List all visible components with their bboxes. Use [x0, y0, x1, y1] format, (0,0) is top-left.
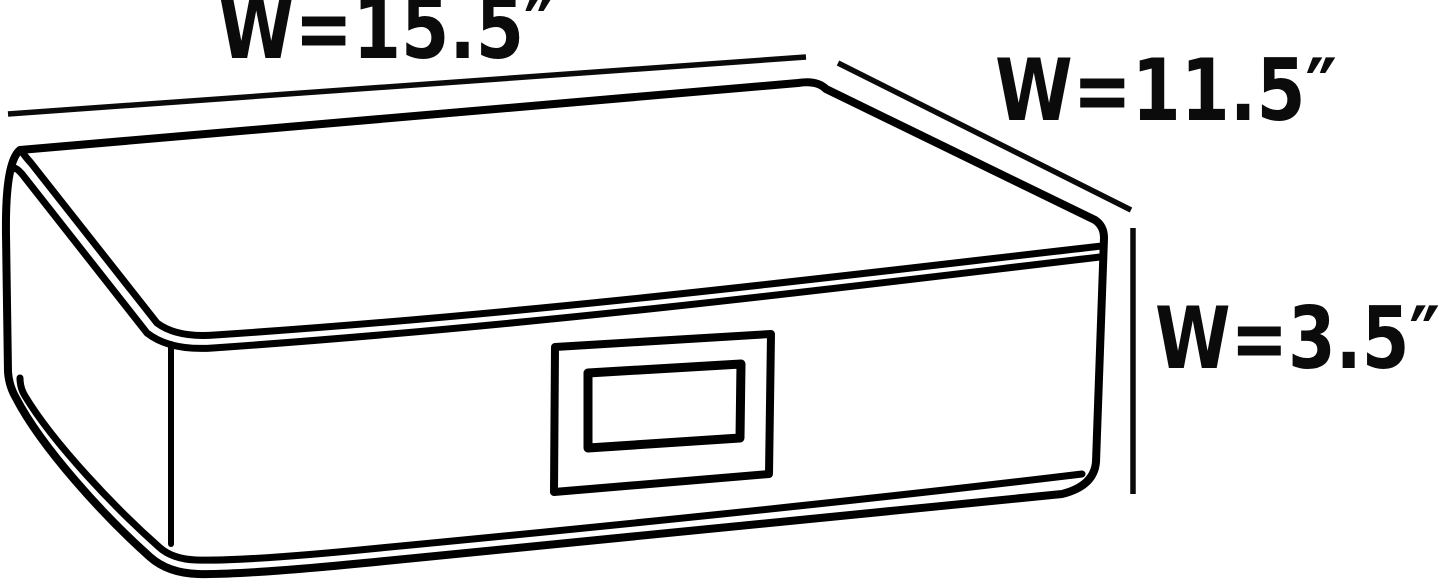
diagram-canvas: W=15.5″ W=11.5″ W=3.5″	[0, 0, 1445, 581]
label-plate-window	[588, 364, 741, 448]
dim-label-height: W=3.5″	[1155, 289, 1440, 389]
top-edge-piping-outer-line	[21, 150, 1102, 336]
dim-label-side-depth: W=11.5″	[995, 41, 1337, 141]
storage-box-dimension-diagram: W=15.5″ W=11.5″ W=3.5″	[0, 0, 1445, 581]
dim-label-top-width: W=15.5″	[218, 0, 555, 79]
top-edge-piping-inner-line	[13, 168, 1100, 348]
